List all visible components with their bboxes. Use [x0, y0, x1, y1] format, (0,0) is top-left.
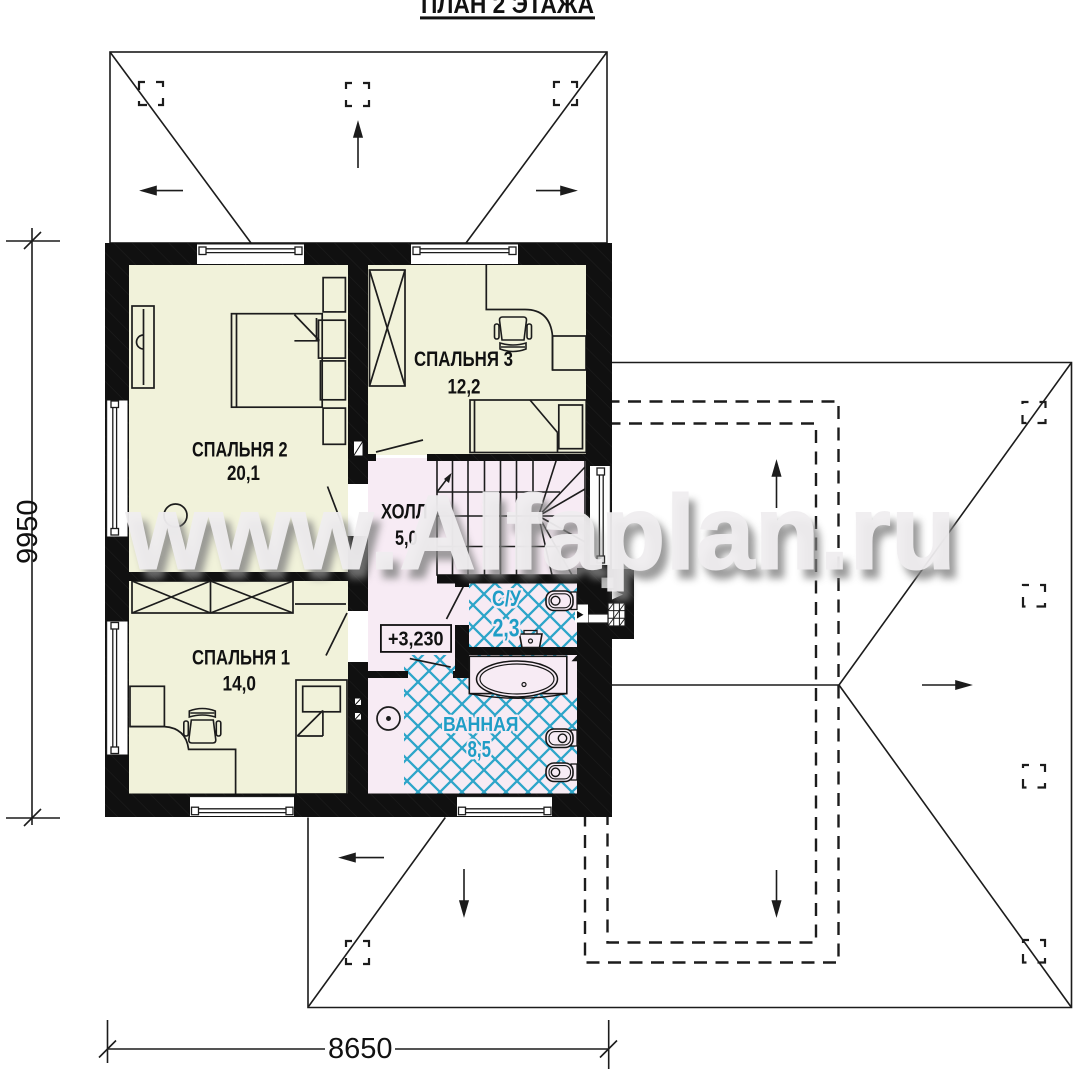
svg-text:8,5: 8,5	[468, 736, 492, 762]
svg-text:ПЛАН 2 ЭТАЖА: ПЛАН 2 ЭТАЖА	[421, 0, 594, 19]
svg-text:2,3: 2,3	[493, 615, 520, 643]
svg-text:СПАЛЬНЯ 1: СПАЛЬНЯ 1	[192, 646, 290, 670]
svg-text:ВАННАЯ: ВАННАЯ	[443, 713, 519, 736]
svg-text:СПАЛЬНЯ 2: СПАЛЬНЯ 2	[192, 438, 288, 462]
svg-text:9950: 9950	[12, 499, 44, 564]
svg-text:8650: 8650	[328, 1033, 393, 1065]
svg-text:14,0: 14,0	[223, 672, 257, 696]
svg-text:СПАЛЬНЯ 3: СПАЛЬНЯ 3	[414, 347, 513, 371]
svg-text:+3,230: +3,230	[388, 629, 444, 651]
svg-text:12,2: 12,2	[448, 375, 481, 399]
svg-text:www.Alfaplan.ru: www.Alfaplan.ru	[126, 475, 956, 592]
